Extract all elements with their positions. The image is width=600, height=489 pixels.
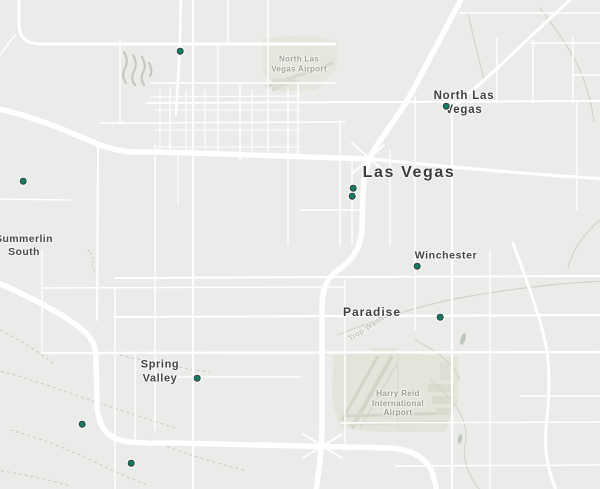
map-marker-marker-9[interactable] [79, 421, 86, 428]
map-markers-layer [0, 0, 600, 489]
map-marker-marker-7[interactable] [437, 314, 444, 321]
map-marker-marker-5[interactable] [349, 193, 356, 200]
map-marker-marker-10[interactable] [128, 460, 135, 467]
map-marker-marker-2[interactable] [20, 178, 27, 185]
map-canvas[interactable]: North LasVegas AirportNorth LasVegasLas … [0, 0, 600, 489]
map-marker-marker-3[interactable] [443, 103, 450, 110]
map-marker-marker-4[interactable] [350, 185, 357, 192]
map-marker-marker-6[interactable] [414, 263, 421, 270]
map-marker-marker-1[interactable] [177, 48, 184, 55]
map-marker-marker-8[interactable] [194, 375, 201, 382]
